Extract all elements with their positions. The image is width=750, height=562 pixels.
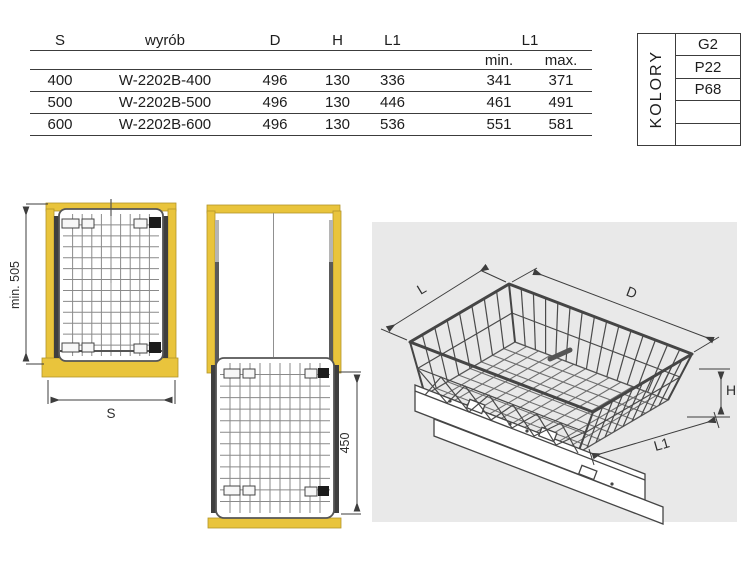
dimension-s <box>48 380 175 404</box>
iso-view-drawing: L D H L1 <box>372 222 737 524</box>
dimension-min505 <box>26 204 48 364</box>
dimension-450-label: 450 <box>338 433 352 454</box>
front-view-drawing: min. 505 S <box>8 199 178 421</box>
dimension-h-label: H <box>726 382 736 398</box>
technical-drawings: min. 505 S <box>0 0 750 562</box>
dimension-min505-label: min. 505 <box>8 261 22 309</box>
top-view-drawing: 450 <box>207 205 361 528</box>
dimension-s-label: S <box>106 406 115 421</box>
